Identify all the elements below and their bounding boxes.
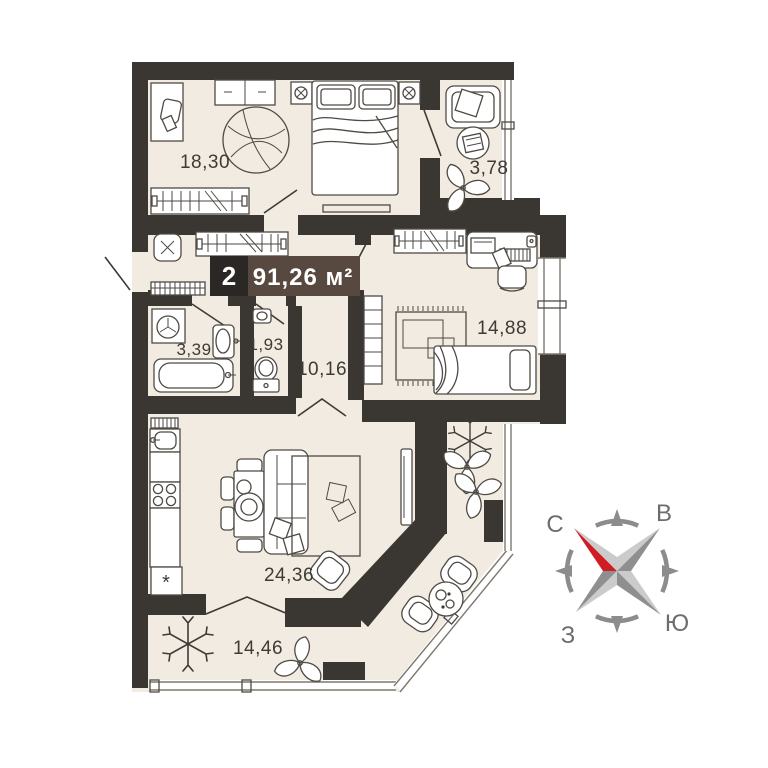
desk-icon: [467, 232, 537, 269]
entrance-door: [105, 257, 130, 290]
fridge-icon: *: [151, 567, 182, 595]
room-area-label: 3,78: [470, 158, 509, 179]
armchair-icon: [446, 86, 500, 128]
compass-south-label: Ю: [665, 610, 689, 637]
desk-chair-icon: [498, 266, 526, 291]
side-table-icon: [457, 127, 489, 159]
compass-north-label: С: [546, 511, 563, 538]
svg-text:*: *: [162, 572, 170, 594]
bookshelf-icon: [364, 296, 382, 384]
mirror-cabinet-icon: [154, 234, 181, 261]
floor-plan-page: 18,30 3,78 10,16: [0, 0, 768, 768]
nightstand-icon: [291, 82, 312, 104]
radiator-icon: [151, 418, 178, 428]
compass-east-label: В: [656, 500, 672, 527]
small-sink-icon: [253, 309, 271, 323]
room-area-label: 14,46: [233, 638, 283, 659]
single-bed-icon: [434, 346, 536, 394]
tv-icon: [401, 449, 412, 525]
room-area-label: 18,30: [180, 152, 230, 173]
compass-west-label: З: [561, 622, 576, 649]
compass-rose: С В Ю З: [546, 500, 689, 649]
kitchen-counter-icon: [150, 508, 180, 567]
double-bed-icon: [312, 81, 398, 195]
coffee-table-icon: [429, 582, 463, 616]
wardrobe-icon: [151, 188, 249, 214]
dresser-icon: [215, 80, 275, 105]
bay-window: [538, 258, 566, 354]
wardrobe-icon: [196, 232, 288, 256]
apartment-label: 2 91,26 м²: [210, 256, 360, 296]
total-area-text: 91,26 м²: [253, 264, 353, 291]
toilet-icon: [253, 357, 279, 392]
room-area-label: 14,88: [477, 318, 527, 339]
room-area-label: 1,93: [248, 335, 283, 354]
bathtub-icon: [154, 359, 236, 392]
nightstand-icon: [399, 82, 420, 104]
radiator-icon: [151, 282, 205, 295]
room-area-label: 10,16: [297, 359, 347, 380]
kitchen-counter-icon: [150, 452, 180, 482]
rooms-count-text: 2: [222, 261, 236, 291]
stove-icon: [150, 482, 180, 508]
kitchen-sink-icon: [150, 429, 180, 452]
washing-machine-icon: [152, 309, 185, 343]
wardrobe-icon: [394, 229, 466, 253]
room-area-label: 24,36: [264, 565, 314, 586]
floor-plan: 18,30 3,78 10,16: [0, 0, 768, 768]
room-area-label: 3,39: [176, 340, 211, 359]
desk-icon: [151, 83, 183, 141]
sofa-icon: [264, 450, 308, 555]
